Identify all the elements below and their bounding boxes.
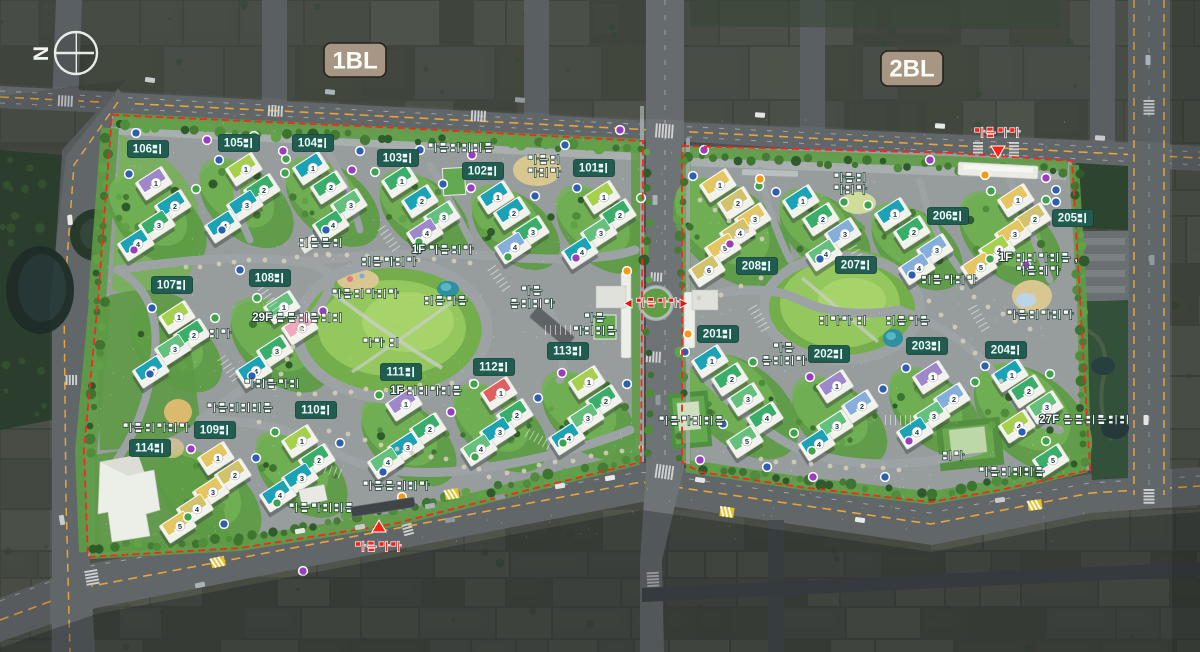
svg-text:1: 1 [154, 179, 158, 188]
svg-text:103: 103 [383, 153, 402, 165]
svg-text:3: 3 [406, 443, 410, 452]
svg-text:2: 2 [736, 199, 740, 208]
svg-text:105: 105 [224, 138, 244, 150]
svg-text:5: 5 [1051, 456, 1055, 465]
svg-text:5: 5 [178, 522, 182, 531]
svg-text:205: 205 [1058, 213, 1078, 225]
svg-text:1: 1 [499, 389, 503, 398]
svg-text:2: 2 [912, 228, 916, 237]
svg-text:1: 1 [587, 378, 591, 387]
svg-text:1: 1 [1010, 371, 1014, 380]
svg-text:1: 1 [835, 382, 839, 391]
svg-text:2: 2 [952, 395, 956, 404]
svg-text:207: 207 [841, 260, 860, 272]
svg-text:1F: 1F [412, 244, 425, 256]
svg-text:109: 109 [200, 425, 219, 437]
svg-text:113: 113 [553, 346, 572, 358]
svg-text:3: 3 [245, 201, 249, 210]
svg-text:3: 3 [442, 213, 446, 222]
svg-text:1: 1 [801, 197, 805, 206]
svg-text:3: 3 [1045, 403, 1049, 412]
svg-text:1: 1 [718, 181, 722, 190]
svg-text:1: 1 [311, 164, 315, 173]
svg-text:208: 208 [742, 261, 762, 273]
svg-text:1: 1 [177, 313, 181, 322]
svg-text:3: 3 [932, 412, 936, 421]
svg-text:2: 2 [192, 331, 196, 340]
svg-text:2: 2 [173, 202, 177, 211]
svg-text:6: 6 [707, 266, 711, 275]
svg-text:1F: 1F [999, 252, 1012, 264]
svg-text:3: 3 [157, 221, 161, 230]
svg-text:2: 2 [604, 397, 608, 406]
svg-text:N: N [30, 46, 53, 61]
svg-text:2: 2 [428, 425, 432, 434]
svg-text:3: 3 [746, 395, 750, 404]
svg-text:3: 3 [835, 422, 839, 431]
svg-text:2: 2 [1027, 387, 1031, 396]
svg-text:204: 204 [991, 345, 1011, 357]
svg-text:203: 203 [912, 341, 931, 353]
svg-text:3: 3 [1013, 230, 1017, 239]
svg-text:206: 206 [933, 211, 952, 223]
svg-text:1: 1 [893, 210, 897, 219]
svg-text:1BL: 1BL [332, 48, 377, 75]
svg-text:5: 5 [745, 437, 749, 446]
svg-text:2: 2 [860, 402, 864, 411]
svg-text:1: 1 [282, 303, 286, 312]
svg-text:3: 3 [935, 246, 939, 255]
svg-text:1: 1 [931, 373, 935, 382]
svg-text:1: 1 [710, 357, 714, 366]
svg-text:108: 108 [255, 273, 275, 285]
svg-text:3: 3 [599, 229, 603, 238]
svg-text:101: 101 [579, 163, 599, 175]
svg-text:106: 106 [133, 144, 152, 156]
svg-text:3: 3 [300, 474, 304, 483]
svg-text:2: 2 [821, 215, 825, 224]
svg-text:5: 5 [979, 263, 983, 272]
svg-text:3: 3 [275, 347, 279, 356]
svg-text:27F: 27F [1039, 414, 1059, 426]
svg-text:3: 3 [498, 428, 502, 437]
svg-text:1: 1 [300, 437, 304, 446]
svg-text:,: , [1074, 252, 1077, 264]
svg-text:1: 1 [404, 400, 408, 409]
svg-text:29F: 29F [252, 312, 272, 324]
svg-text:2: 2 [262, 186, 266, 195]
svg-text:2: 2 [329, 183, 333, 192]
svg-text:110: 110 [301, 405, 320, 417]
svg-text:1: 1 [216, 454, 220, 463]
svg-text:1: 1 [244, 165, 248, 174]
svg-text:1: 1 [602, 193, 606, 202]
svg-text:3: 3 [349, 201, 353, 210]
svg-text:3: 3 [586, 414, 590, 423]
svg-text:1: 1 [496, 193, 500, 202]
svg-text:3: 3 [173, 345, 177, 354]
svg-text:201: 201 [703, 329, 723, 341]
svg-text:2BL: 2BL [889, 56, 934, 83]
svg-text:1F: 1F [390, 385, 403, 397]
svg-text:2: 2 [420, 197, 424, 206]
svg-text:2: 2 [618, 211, 622, 220]
svg-text:2: 2 [1033, 215, 1037, 224]
svg-text:3: 3 [843, 230, 847, 239]
svg-text:114: 114 [135, 443, 154, 455]
svg-text:202: 202 [814, 349, 833, 361]
svg-text:2: 2 [730, 375, 734, 384]
svg-text:2: 2 [512, 209, 516, 218]
svg-text:2: 2 [233, 471, 237, 480]
svg-text:2: 2 [515, 411, 519, 420]
svg-text:111: 111 [386, 367, 405, 379]
svg-text:3: 3 [753, 215, 757, 224]
svg-text:107: 107 [157, 280, 176, 292]
svg-text:1: 1 [1016, 196, 1020, 205]
svg-text:3: 3 [531, 228, 535, 237]
svg-text:104: 104 [298, 138, 318, 150]
svg-text:102: 102 [468, 166, 487, 178]
svg-text:3: 3 [211, 488, 215, 497]
svg-text:112: 112 [479, 362, 498, 374]
svg-text:1: 1 [400, 177, 404, 186]
